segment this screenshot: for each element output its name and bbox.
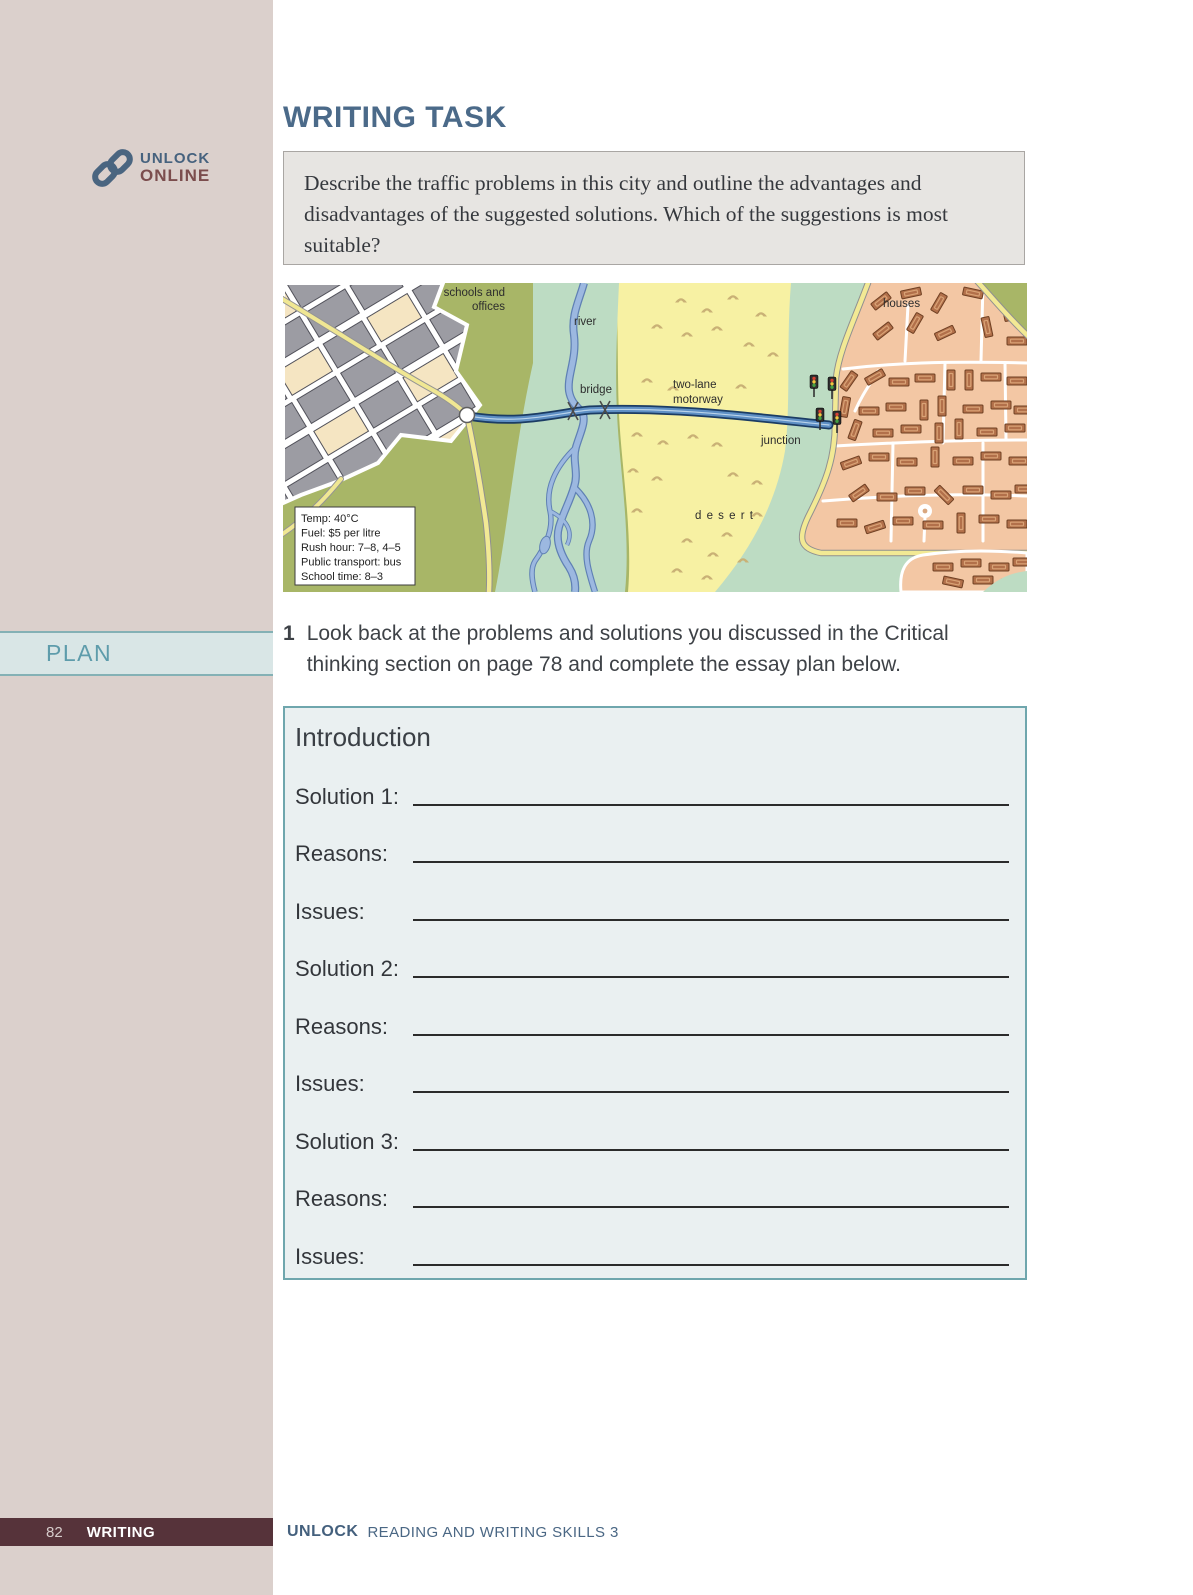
plan-blank-line xyxy=(413,919,1009,921)
logo-brand-bottom: ONLINE xyxy=(140,167,210,185)
label-river: river xyxy=(574,316,597,328)
label-bridge: bridge xyxy=(580,384,612,396)
page-title: WRITING TASK xyxy=(283,101,507,135)
label-motorway-line2: motorway xyxy=(673,394,723,406)
exercise-text: Look back at the problems and solutions … xyxy=(307,618,985,680)
info-public-transport: Public transport: bus xyxy=(301,557,402,569)
label-junction: junction xyxy=(760,435,801,447)
plan-row-label: Solution 3: xyxy=(295,1129,413,1155)
plan-blank-line xyxy=(413,1034,1009,1036)
plan-row-label: Issues: xyxy=(295,1244,413,1270)
exercise-number: 1 xyxy=(283,618,295,680)
plan-blank-line xyxy=(413,861,1009,863)
plan-row-label: Reasons: xyxy=(295,1186,413,1212)
plan-row-solution-2: Solution 2: xyxy=(295,929,1025,987)
writing-task-box: Describe the traffic problems in this ci… xyxy=(283,151,1025,265)
plan-row-label: Solution 2: xyxy=(295,956,413,982)
exercise-1-instruction: 1 Look back at the problems and solution… xyxy=(283,618,1003,680)
unlock-online-logo: UNLOCK ONLINE xyxy=(92,146,210,190)
plan-row-issues-1: Issues: xyxy=(295,871,1025,929)
label-schools-offices-line2: offices xyxy=(472,301,505,313)
plan-blank-line xyxy=(413,1149,1009,1151)
info-rush-hour: Rush hour: 7–8, 4–5 xyxy=(301,542,401,554)
footer-section-label: WRITING xyxy=(87,1524,156,1541)
plan-row-label: Issues: xyxy=(295,1071,413,1097)
plan-row-issues-3: Issues: xyxy=(295,1216,1025,1274)
logo-brand-top: UNLOCK xyxy=(140,151,210,167)
plan-section-tab: PLAN xyxy=(0,631,273,676)
road-node xyxy=(460,408,475,423)
plan-row-reasons-2: Reasons: xyxy=(295,986,1025,1044)
plan-blank-line xyxy=(413,1264,1009,1266)
label-houses: houses xyxy=(883,298,920,310)
plan-row-solution-3: Solution 3: xyxy=(295,1101,1025,1159)
info-temp: Temp: 40°C xyxy=(301,513,359,525)
plan-row-label: Reasons: xyxy=(295,1014,413,1040)
textbook-page: UNLOCK ONLINE PLAN WRITING TASK Describe… xyxy=(0,0,1193,1595)
label-schools-offices-line1: schools and xyxy=(444,287,505,299)
info-school-time: School time: 8–3 xyxy=(301,571,383,583)
essay-plan-box: Introduction Solution 1: Reasons: Issues… xyxy=(283,706,1027,1280)
plan-row-issues-2: Issues: xyxy=(295,1044,1025,1102)
plan-row-label: Issues: xyxy=(295,899,413,925)
plan-blank-line xyxy=(413,804,1009,806)
writing-task-text: Describe the traffic problems in this ci… xyxy=(304,168,1010,261)
plan-introduction-heading: Introduction xyxy=(295,722,431,753)
plan-blank-line xyxy=(413,1206,1009,1208)
plan-row-label: Reasons: xyxy=(295,841,413,867)
footer-book-title: UNLOCK READING AND WRITING SKILLS 3 xyxy=(287,1518,619,1546)
plan-row-solution-1: Solution 1: xyxy=(295,756,1025,814)
plan-row-reasons-3: Reasons: xyxy=(295,1159,1025,1217)
city-map-illustration: schools and offices river bridge two-lan… xyxy=(283,283,1027,592)
label-desert: d e s e r t xyxy=(695,510,754,522)
page-number: 82 xyxy=(46,1524,63,1541)
footer-page-bar: 82 WRITING xyxy=(0,1518,273,1546)
plan-tab-label: PLAN xyxy=(46,640,112,667)
plan-row-label: Solution 1: xyxy=(295,784,413,810)
info-fuel: Fuel: $5 per litre xyxy=(301,528,380,540)
left-sidebar: UNLOCK ONLINE PLAN xyxy=(0,0,273,1595)
label-motorway-line1: two-lane xyxy=(673,379,716,391)
plan-blank-line xyxy=(413,976,1009,978)
plan-blank-line xyxy=(413,1091,1009,1093)
chain-link-icon xyxy=(92,146,134,190)
plan-row-reasons-1: Reasons: xyxy=(295,814,1025,872)
map-info-box: Temp: 40°C Fuel: $5 per litre Rush hour:… xyxy=(295,507,415,585)
footer-brand: UNLOCK xyxy=(287,1523,358,1541)
plan-rows: Solution 1: Reasons: Issues: Solution 2:… xyxy=(295,756,1025,1274)
footer-book-name: READING AND WRITING SKILLS 3 xyxy=(367,1524,618,1541)
